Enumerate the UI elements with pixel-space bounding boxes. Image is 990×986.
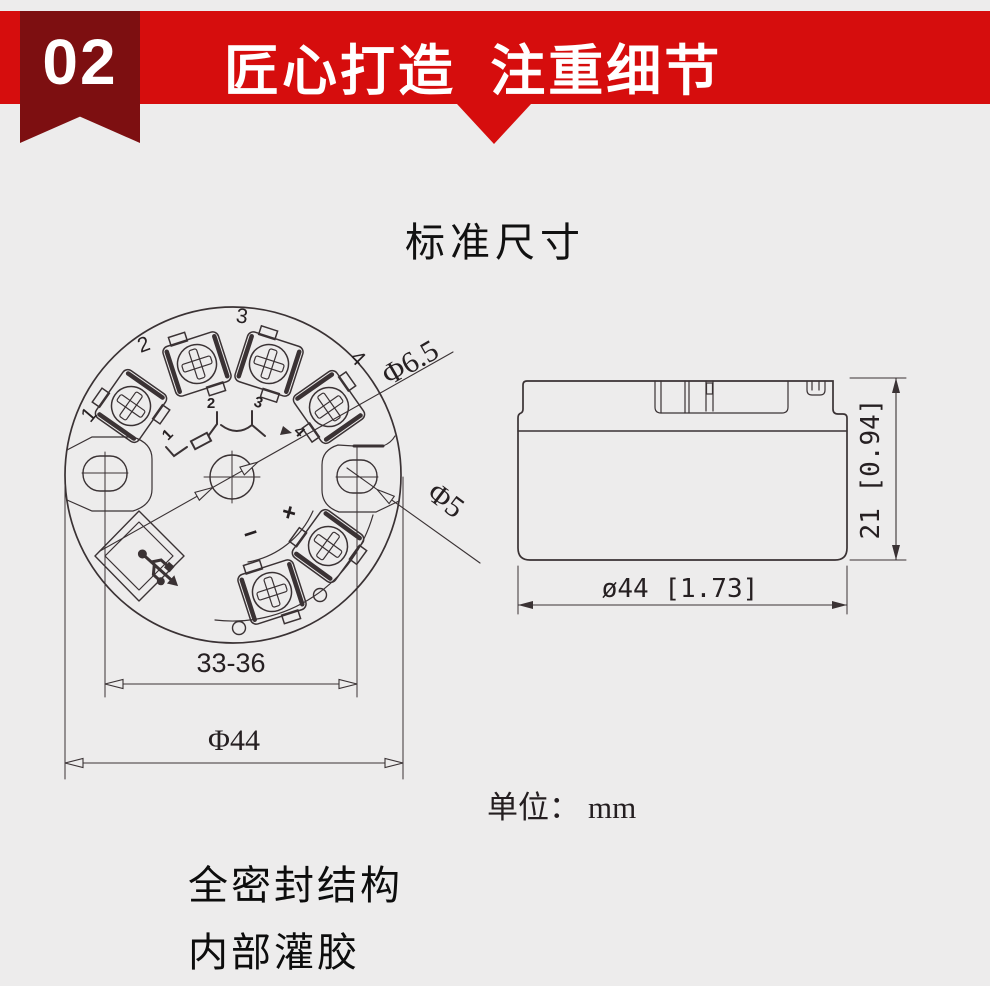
dim-center-hole-label: Φ6.5 [376, 334, 444, 392]
feature-sealed-structure: 全密封结构 [188, 853, 403, 911]
dim-hole-spacing-label: 33-36 [196, 648, 265, 678]
dim-mounting-hole: Φ5 [347, 468, 480, 563]
polarity-plus: + [279, 498, 300, 528]
unit-note: 单位：mm [487, 782, 636, 827]
schematic-number-1: 1 [159, 426, 177, 444]
schematic-number-3: 3 [252, 393, 265, 412]
dim-height-label: 21 [0.94] [856, 399, 886, 540]
dim-width-label: ø44 [1.73] [602, 574, 759, 604]
terminal-block [159, 323, 235, 406]
terminal-block [231, 323, 307, 406]
top-view: 1 2 3 4 1 2 3 4 [65, 304, 480, 779]
polarity-minus: − [240, 519, 262, 549]
terminal-number-3: 3 [235, 304, 250, 328]
feature-internal-potting: 内部灌胶 [188, 920, 360, 978]
small-hole [233, 622, 246, 635]
dim-center-hole: Φ6.5 [100, 334, 453, 551]
side-outline [518, 381, 847, 560]
page: 02 匠心打造 注重细节 标准尺寸 [0, 0, 990, 986]
side-view: 21 [0.94] ø44 [1.73] [518, 378, 906, 614]
dim-width: ø44 [1.73] [518, 566, 847, 614]
schematic-number-2: 2 [207, 395, 215, 412]
technical-drawing: 1 2 3 4 1 2 3 4 [0, 0, 990, 986]
unit-value: mm [588, 790, 636, 825]
terminal-number-2: 2 [134, 332, 153, 358]
dim-height: 21 [0.94] [850, 378, 906, 560]
terminal-number-4: 4 [345, 346, 370, 371]
dim-mounting-hole-label: Φ5 [421, 476, 470, 525]
dim-outer-diameter-label: Φ44 [208, 724, 260, 757]
unit-label: 单位： [487, 790, 580, 825]
dim-outer-diameter: Φ44 [65, 477, 403, 779]
